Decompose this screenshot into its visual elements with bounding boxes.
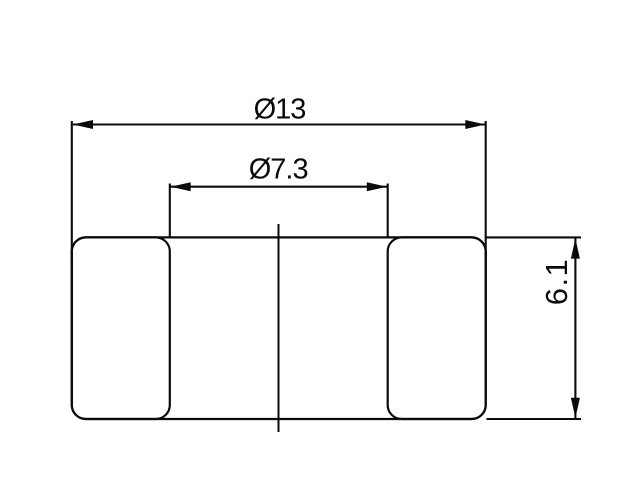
svg-text:Ø7.3: Ø7.3 xyxy=(249,154,308,186)
svg-text:6.1: 6.1 xyxy=(539,258,574,306)
svg-text:Ø13: Ø13 xyxy=(254,93,306,125)
